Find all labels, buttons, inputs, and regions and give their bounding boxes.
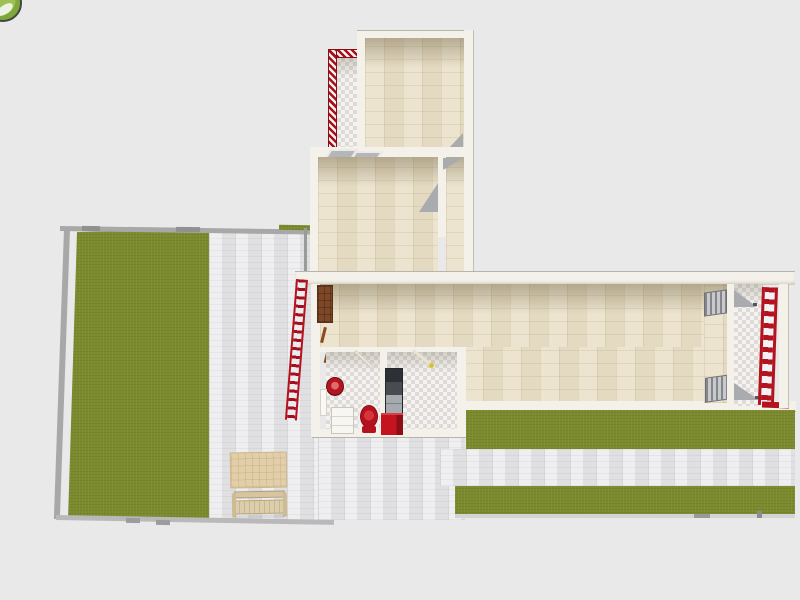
south-fence-post-a <box>694 514 710 518</box>
south-fence <box>455 514 795 518</box>
south-garden <box>0 0 800 600</box>
south-lawn-lower <box>455 486 795 516</box>
south-path <box>440 449 795 486</box>
3d-viewport[interactable] <box>0 0 800 600</box>
south-lawn-upper <box>466 410 795 449</box>
south-fence-post-b <box>757 511 762 518</box>
